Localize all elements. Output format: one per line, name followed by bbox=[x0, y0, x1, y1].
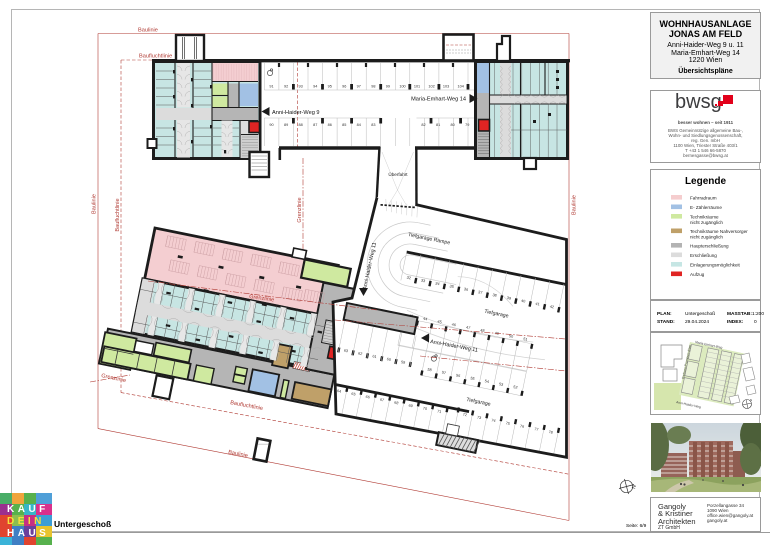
svg-text:71: 71 bbox=[437, 409, 442, 414]
svg-text:nicht zugänglich: nicht zugänglich bbox=[690, 235, 723, 240]
svg-text:53: 53 bbox=[499, 382, 504, 387]
svg-text:Grenzlinie: Grenzlinie bbox=[297, 197, 303, 222]
svg-text:44: 44 bbox=[423, 317, 428, 322]
svg-text:104: 104 bbox=[458, 85, 464, 89]
svg-text:80: 80 bbox=[450, 123, 454, 127]
svg-text:36: 36 bbox=[464, 287, 469, 292]
svg-text:nicht zugänglich: nicht zugänglich bbox=[690, 220, 723, 225]
svg-text:Überfahrt: Überfahrt bbox=[388, 171, 408, 177]
svg-text:58: 58 bbox=[427, 368, 432, 373]
svg-text:Grenzlinie: Grenzlinie bbox=[101, 373, 127, 384]
svg-text:95: 95 bbox=[328, 85, 332, 89]
svg-text:61: 61 bbox=[372, 354, 377, 359]
svg-text:93: 93 bbox=[298, 85, 302, 89]
svg-text:N: N bbox=[631, 484, 638, 489]
svg-text:HAUS: HAUS bbox=[7, 528, 49, 539]
svg-text:34: 34 bbox=[435, 281, 440, 286]
svg-text:91: 91 bbox=[269, 85, 273, 89]
svg-text:90: 90 bbox=[269, 123, 273, 127]
svg-text:81: 81 bbox=[436, 123, 440, 127]
svg-text:103: 103 bbox=[443, 85, 449, 89]
svg-text:Fahrradraum: Fahrradraum bbox=[690, 195, 717, 200]
svg-text:Baulinie: Baulinie bbox=[92, 194, 98, 214]
svg-text:Baulinie: Baulinie bbox=[138, 28, 158, 34]
svg-text:99: 99 bbox=[386, 85, 390, 89]
svg-text:76: 76 bbox=[520, 424, 525, 429]
svg-text:84: 84 bbox=[357, 123, 361, 127]
svg-text:Technikräume: Technikräume bbox=[690, 214, 719, 219]
svg-text:57: 57 bbox=[441, 370, 446, 375]
svg-text:Baufluchtlinie: Baufluchtlinie bbox=[230, 400, 264, 412]
svg-text:73: 73 bbox=[477, 415, 482, 420]
svg-text:39: 39 bbox=[506, 296, 511, 301]
svg-text:60: 60 bbox=[386, 357, 391, 362]
svg-text:38: 38 bbox=[492, 293, 497, 298]
svg-text:96: 96 bbox=[342, 85, 346, 89]
svg-text:32: 32 bbox=[406, 276, 411, 281]
svg-text:Einlagerungsmöglichkeit: Einlagerungsmöglichkeit bbox=[690, 262, 741, 267]
svg-text:82: 82 bbox=[421, 123, 425, 127]
svg-text:Aufzug: Aufzug bbox=[690, 272, 705, 277]
svg-text:41: 41 bbox=[535, 302, 540, 307]
svg-text:94: 94 bbox=[313, 85, 317, 89]
svg-text:65: 65 bbox=[351, 392, 356, 397]
svg-text:92: 92 bbox=[284, 85, 288, 89]
svg-text:Maria-Emhart-Weg 14: Maria-Emhart-Weg 14 bbox=[411, 97, 466, 103]
svg-text:77: 77 bbox=[534, 427, 539, 432]
svg-text:88: 88 bbox=[298, 123, 302, 127]
svg-text:54: 54 bbox=[484, 379, 489, 384]
svg-text:69: 69 bbox=[408, 404, 413, 409]
svg-text:Baufluchtlinie: Baufluchtlinie bbox=[139, 54, 172, 60]
svg-text:35: 35 bbox=[449, 284, 454, 289]
svg-text:100: 100 bbox=[399, 85, 405, 89]
svg-text:40: 40 bbox=[521, 299, 526, 304]
svg-text:N: N bbox=[750, 398, 752, 402]
svg-text:37: 37 bbox=[478, 290, 483, 295]
svg-text:74: 74 bbox=[491, 418, 496, 423]
svg-text:78: 78 bbox=[548, 430, 553, 435]
svg-text:Erschließung: Erschließung bbox=[690, 253, 717, 258]
svg-text:59: 59 bbox=[401, 360, 406, 365]
svg-text:Anni-Haider-Weg 9: Anni-Haider-Weg 9 bbox=[272, 110, 319, 116]
svg-text:46: 46 bbox=[451, 323, 456, 328]
svg-text:42: 42 bbox=[549, 305, 554, 310]
svg-text:101: 101 bbox=[414, 85, 420, 89]
svg-text:86: 86 bbox=[328, 123, 332, 127]
svg-text:72: 72 bbox=[462, 413, 467, 418]
svg-text:Technikräume Nahversorger: Technikräume Nahversorger bbox=[690, 229, 748, 234]
svg-text:DEIN: DEIN bbox=[7, 516, 45, 527]
svg-text:51: 51 bbox=[523, 337, 528, 342]
svg-text:79: 79 bbox=[465, 123, 469, 127]
svg-text:52: 52 bbox=[513, 385, 518, 390]
svg-text:Baulinie: Baulinie bbox=[572, 195, 578, 215]
svg-text:E- Zählerräume: E- Zählerräume bbox=[690, 205, 722, 210]
svg-text:Haupterschließung: Haupterschließung bbox=[690, 243, 729, 248]
svg-text:102: 102 bbox=[428, 85, 434, 89]
svg-text:55: 55 bbox=[470, 376, 475, 381]
svg-text:Baulinie: Baulinie bbox=[228, 450, 249, 460]
svg-text:85: 85 bbox=[342, 123, 346, 127]
svg-text:33: 33 bbox=[421, 278, 426, 283]
svg-text:68: 68 bbox=[394, 401, 399, 406]
svg-text:64: 64 bbox=[337, 389, 342, 394]
svg-text:89: 89 bbox=[284, 123, 288, 127]
svg-text:83: 83 bbox=[371, 123, 375, 127]
svg-text:50: 50 bbox=[509, 334, 514, 339]
svg-text:87: 87 bbox=[313, 123, 317, 127]
svg-text:56: 56 bbox=[456, 373, 461, 378]
svg-text:70: 70 bbox=[422, 406, 427, 411]
svg-text:45: 45 bbox=[437, 320, 442, 325]
svg-text:66: 66 bbox=[365, 395, 370, 400]
svg-text:97: 97 bbox=[357, 85, 361, 89]
svg-text:98: 98 bbox=[371, 85, 375, 89]
svg-text:62: 62 bbox=[358, 351, 363, 356]
svg-text:Baufluchtlinie: Baufluchtlinie bbox=[115, 198, 121, 231]
svg-text:75: 75 bbox=[505, 421, 510, 426]
svg-text:47: 47 bbox=[466, 325, 471, 330]
svg-text:KAUF: KAUF bbox=[7, 504, 49, 515]
svg-text:67: 67 bbox=[380, 398, 385, 403]
svg-text:63: 63 bbox=[343, 349, 348, 354]
